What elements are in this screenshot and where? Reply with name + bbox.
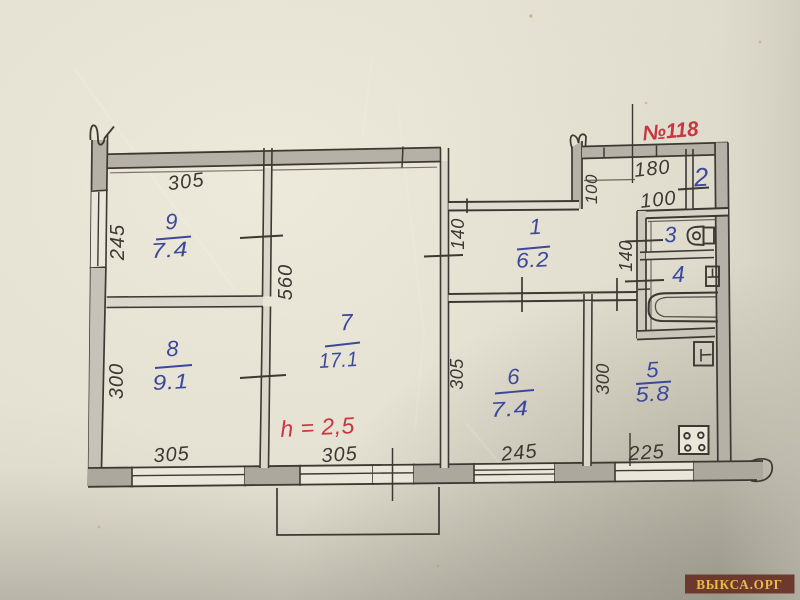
svg-text:9.1: 9.1 [152, 370, 189, 395]
svg-text:9: 9 [165, 209, 179, 235]
svg-text:3: 3 [664, 222, 678, 248]
svg-text:305: 305 [447, 358, 467, 390]
svg-text:225: 225 [627, 441, 666, 466]
svg-text:140: 140 [616, 240, 636, 272]
svg-text:305: 305 [321, 443, 359, 467]
svg-text:100: 100 [582, 174, 601, 204]
svg-text:180: 180 [633, 156, 671, 182]
svg-text:7.4: 7.4 [490, 397, 529, 422]
svg-text:17.1: 17.1 [319, 348, 359, 373]
svg-text:8: 8 [166, 336, 180, 362]
svg-text:4: 4 [671, 261, 686, 288]
svg-text:560: 560 [275, 264, 297, 300]
svg-text:6.2: 6.2 [516, 248, 550, 273]
svg-text:ВЫКСА.ОРГ: ВЫКСА.ОРГ [696, 577, 783, 592]
svg-text:2: 2 [692, 162, 710, 193]
svg-text:300: 300 [106, 363, 128, 399]
svg-text:305: 305 [153, 443, 191, 467]
svg-text:№118: №118 [642, 118, 700, 146]
svg-text:7.4: 7.4 [151, 238, 189, 263]
svg-text:305: 305 [167, 169, 206, 195]
svg-text:h = 2,5: h = 2,5 [280, 412, 356, 442]
svg-text:7: 7 [339, 309, 354, 336]
svg-text:245: 245 [499, 440, 538, 466]
svg-text:6: 6 [507, 364, 521, 390]
svg-text:300: 300 [593, 363, 613, 395]
svg-text:245: 245 [107, 224, 129, 261]
svg-text:5.8: 5.8 [635, 382, 670, 407]
svg-text:140: 140 [448, 218, 468, 250]
svg-text:100: 100 [639, 187, 677, 213]
svg-text:5: 5 [646, 357, 660, 383]
svg-text:1: 1 [529, 214, 543, 240]
